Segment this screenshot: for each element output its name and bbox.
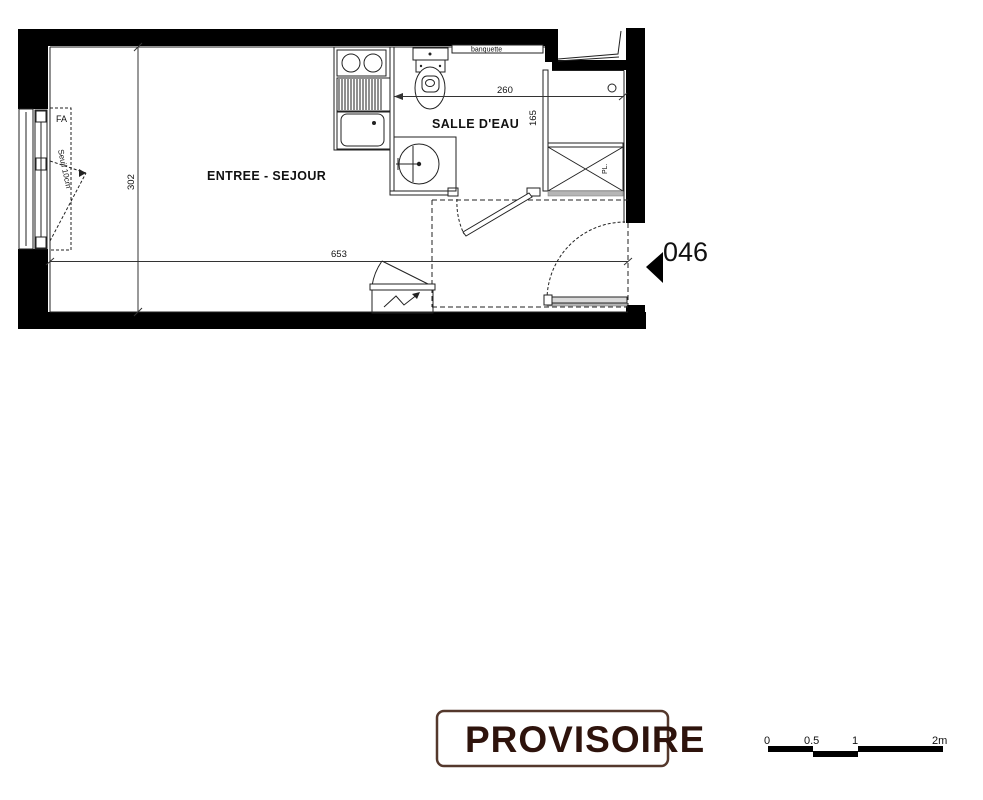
- light-point-icon: [608, 84, 616, 92]
- cooktop-burner-icon: [364, 54, 382, 72]
- kitchen-sink: [341, 114, 384, 146]
- partition-closet-left: [543, 70, 548, 191]
- wall-left-upper: [18, 29, 48, 109]
- scale-segment: [768, 746, 813, 752]
- scale-tick-0: 0: [764, 735, 770, 747]
- kitchenette: [334, 47, 390, 150]
- closet-label: PL.: [602, 163, 609, 174]
- walls: [18, 28, 646, 329]
- wall-bottom: [18, 312, 646, 329]
- electrical-panel: [370, 261, 435, 313]
- wall-niche-left: [545, 29, 558, 62]
- washbasin: [394, 137, 456, 191]
- scale-tick-05: 0.5: [804, 735, 819, 747]
- floor-plan-sheet: FA Seuil 10cm banquette: [0, 0, 983, 800]
- closet-pl: PL.: [548, 143, 623, 196]
- banquette-bench: banquette: [452, 45, 543, 54]
- floor-plan-drawing: FA Seuil 10cm banquette: [0, 0, 983, 800]
- scale-segment: [813, 751, 858, 757]
- unit-arrow-icon: [646, 252, 663, 283]
- toilet: [413, 48, 448, 109]
- door-jamb: [544, 295, 552, 305]
- wall-niche-bottom: [552, 60, 628, 70]
- dim-260: 260: [497, 85, 513, 96]
- stamp-provisoire: PROVISOIRE: [437, 711, 705, 766]
- scale-tick-1: 1: [852, 735, 858, 747]
- dim-302: 302: [126, 174, 137, 190]
- entrance-door: [544, 222, 627, 306]
- partition-kitchen-bath: [390, 47, 394, 191]
- scale-segment: [858, 746, 943, 752]
- sink-unit: [337, 112, 390, 149]
- drainer-hatch: [339, 79, 381, 110]
- toilet-bowl: [415, 67, 445, 109]
- cooktop: [337, 50, 386, 76]
- wall-right-upper: [626, 28, 645, 223]
- panel-box: [372, 290, 433, 313]
- scale-bar: 0 0.5 1 2m: [764, 735, 947, 757]
- dim-165: 165: [528, 110, 539, 126]
- adjacent-door-leaf: [558, 31, 621, 61]
- closet-threshold: [548, 191, 623, 196]
- entrance-door-leaf: [547, 297, 627, 303]
- power-supply-icon: [384, 294, 418, 307]
- bathroom-door-swing: [457, 199, 464, 234]
- wall-right-lower: [626, 305, 645, 329]
- dim-653: 653: [331, 249, 347, 260]
- window-swing-arrow-icon: [79, 169, 86, 177]
- banquette-label: banquette: [471, 47, 502, 54]
- sink-drain-icon: [372, 121, 376, 125]
- unit-marker: 046: [646, 237, 708, 283]
- window-label: FA: [56, 114, 67, 124]
- unit-number-label: 046: [663, 237, 708, 267]
- panel-swing: [372, 261, 382, 286]
- room-label-bathroom: SALLE D'EAU: [432, 117, 519, 131]
- window-fa: FA Seuil 10cm: [19, 108, 86, 250]
- bathroom-door-leaf: [463, 193, 532, 236]
- stamp-text: PROVISOIRE: [465, 719, 705, 760]
- room-label-main: ENTREE - SEJOUR: [207, 169, 326, 183]
- bathroom-door: [457, 193, 532, 236]
- cooktop-burner-icon: [342, 54, 360, 72]
- wall-top: [18, 29, 558, 46]
- hall-zone-boundary: [432, 200, 628, 307]
- closet-cross-icon: [548, 147, 623, 191]
- scale-tick-2m: 2m: [932, 735, 947, 747]
